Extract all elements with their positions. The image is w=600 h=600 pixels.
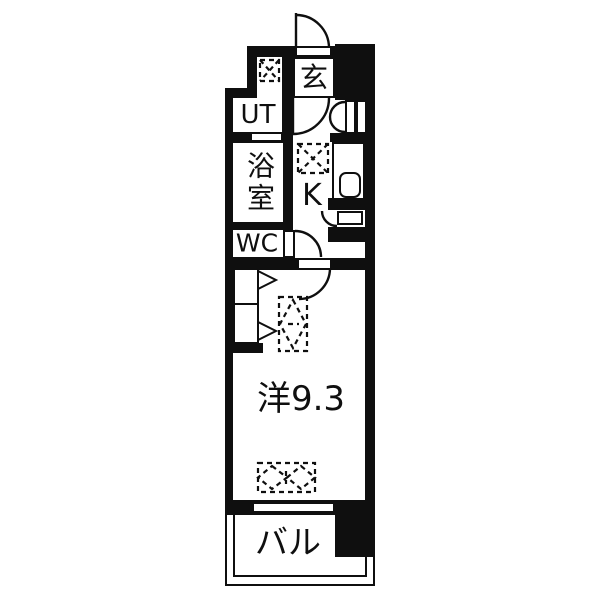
main-room-label: 洋9.3 <box>257 382 345 416</box>
room-door-leaf <box>297 258 332 270</box>
closet-cell-bottom <box>233 303 259 344</box>
wall-left-step <box>225 88 247 98</box>
furniture-space-horizontal-diamond-left <box>258 466 287 489</box>
wall-washer-left <box>247 46 257 98</box>
closet-folding-door-icon <box>258 271 276 289</box>
entrance-label: 玄 <box>300 64 328 92</box>
furniture-space-vertical-icon <box>279 297 307 351</box>
wall-closet-bottom <box>225 343 263 353</box>
shoe-cabinet-panel-left <box>345 100 356 134</box>
wall-balcony-block <box>335 500 375 557</box>
refrigerator-space-cross <box>298 144 328 173</box>
room-door-arc <box>299 268 330 299</box>
furniture-space-horizontal-icon <box>258 463 315 492</box>
entrance-threshold <box>295 46 332 57</box>
entrance-door-arc <box>296 15 329 48</box>
balcony-label: バル <box>255 526 321 559</box>
closet-folding-door-icon <box>258 322 276 340</box>
wall-band-cabinet <box>330 133 375 142</box>
hall-door-arc <box>293 98 329 134</box>
furniture-space-vertical-diamond <box>280 300 306 348</box>
shoe-cabinet-door-arc-bottom <box>330 117 345 132</box>
wc-door-leaf <box>283 230 295 258</box>
shoe-cabinet-panel-right <box>356 100 367 134</box>
storage-hatch-panel <box>337 211 363 225</box>
washing-machine-space-icon <box>260 60 279 81</box>
utility-label: UT <box>241 102 276 128</box>
refrigerator-space-icon <box>298 144 328 173</box>
window-sash <box>252 502 335 513</box>
wall-room-top-right <box>330 258 375 270</box>
bathroom-label: 浴室 <box>245 151 273 215</box>
storage-hatch-arc <box>322 211 337 226</box>
floor-plan: 玄 UT 浴室 WC K 洋9.3 バル <box>0 0 600 600</box>
toilet-label: WC <box>236 231 278 256</box>
wall-band-kitchen <box>328 227 375 242</box>
shoe-cabinet-door-arc-top <box>330 102 345 117</box>
furniture-space-horizontal-diamond-right <box>287 466 315 489</box>
washing-machine-space-cross <box>260 60 279 81</box>
wc-door-arc <box>295 231 321 257</box>
sink-icon <box>339 172 361 198</box>
closet-cell-top <box>233 268 259 305</box>
kitchen-label: K <box>302 181 322 211</box>
